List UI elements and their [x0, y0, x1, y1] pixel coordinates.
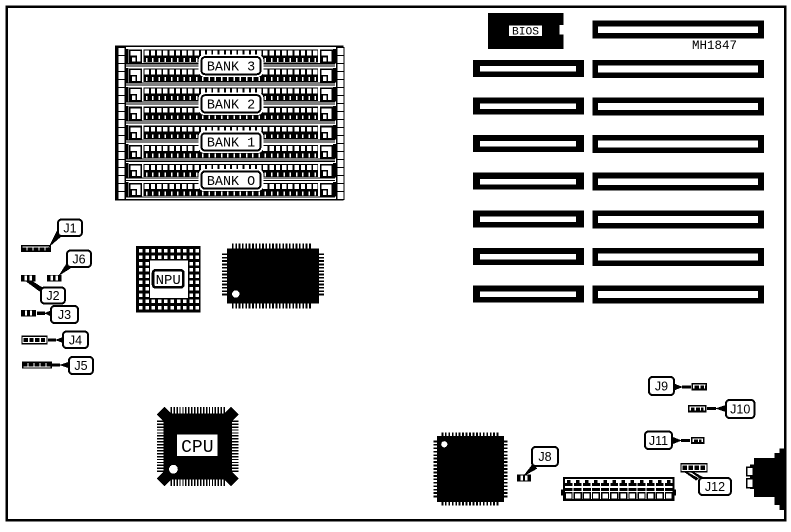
svg-text:J1: J1 [63, 221, 76, 235]
svg-text:J10: J10 [730, 403, 750, 417]
svg-text:J4: J4 [69, 333, 82, 347]
svg-text:J9: J9 [655, 380, 668, 394]
svg-text:BIOS: BIOS [512, 27, 539, 39]
svg-text:CPU: CPU [181, 438, 213, 458]
svg-text:MH1847: MH1847 [692, 39, 737, 53]
svg-text:J8: J8 [538, 450, 551, 464]
svg-text:BANK 3: BANK 3 [207, 61, 255, 76]
svg-text:BANK 2: BANK 2 [207, 99, 255, 114]
svg-text:NPU: NPU [156, 273, 181, 289]
svg-text:BANK 1: BANK 1 [207, 137, 255, 152]
svg-text:J6: J6 [72, 252, 85, 266]
svg-text:BANK O: BANK O [207, 175, 255, 190]
svg-text:J2: J2 [46, 289, 59, 303]
svg-text:J3: J3 [58, 308, 71, 322]
svg-text:J11: J11 [649, 434, 668, 448]
svg-text:J12: J12 [705, 480, 725, 494]
svg-text:J5: J5 [74, 359, 87, 373]
